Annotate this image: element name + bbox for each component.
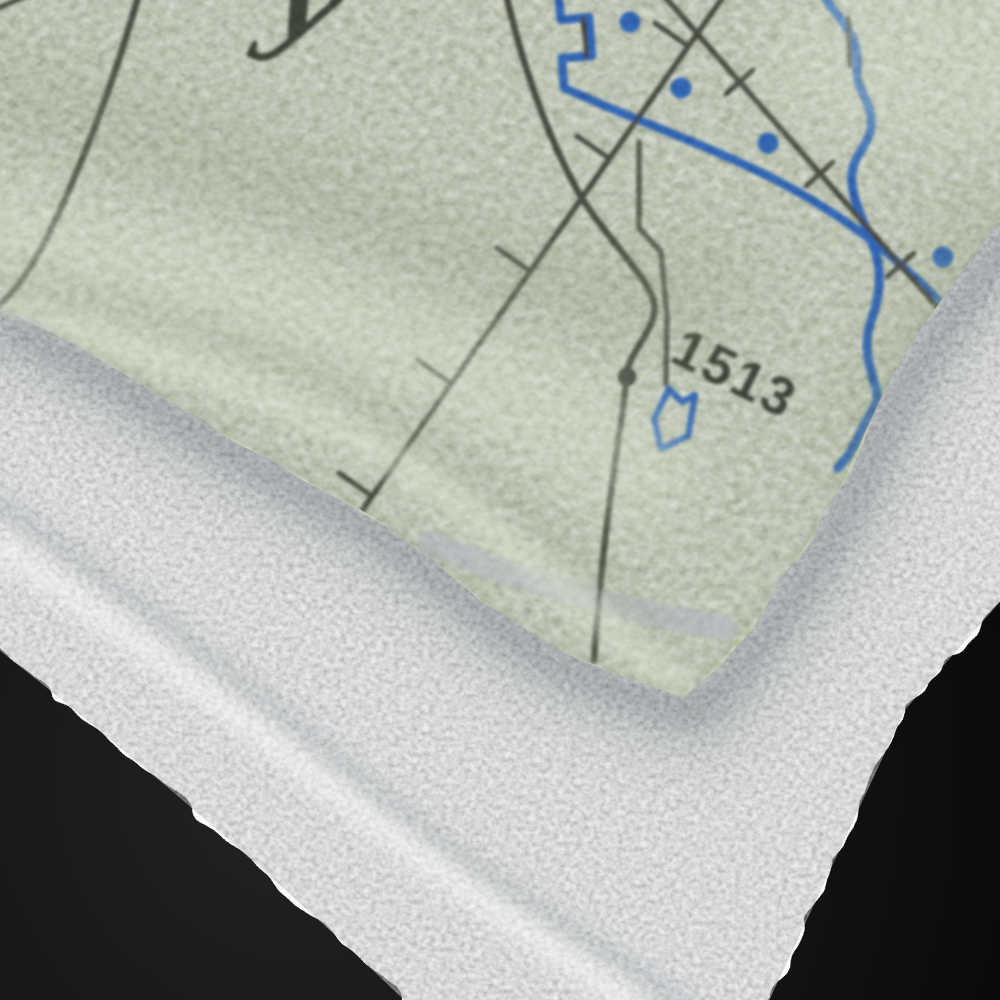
product-photo: 1513 y — [0, 0, 1000, 1000]
product-photo-canvas: 1513 y — [0, 0, 1000, 1000]
